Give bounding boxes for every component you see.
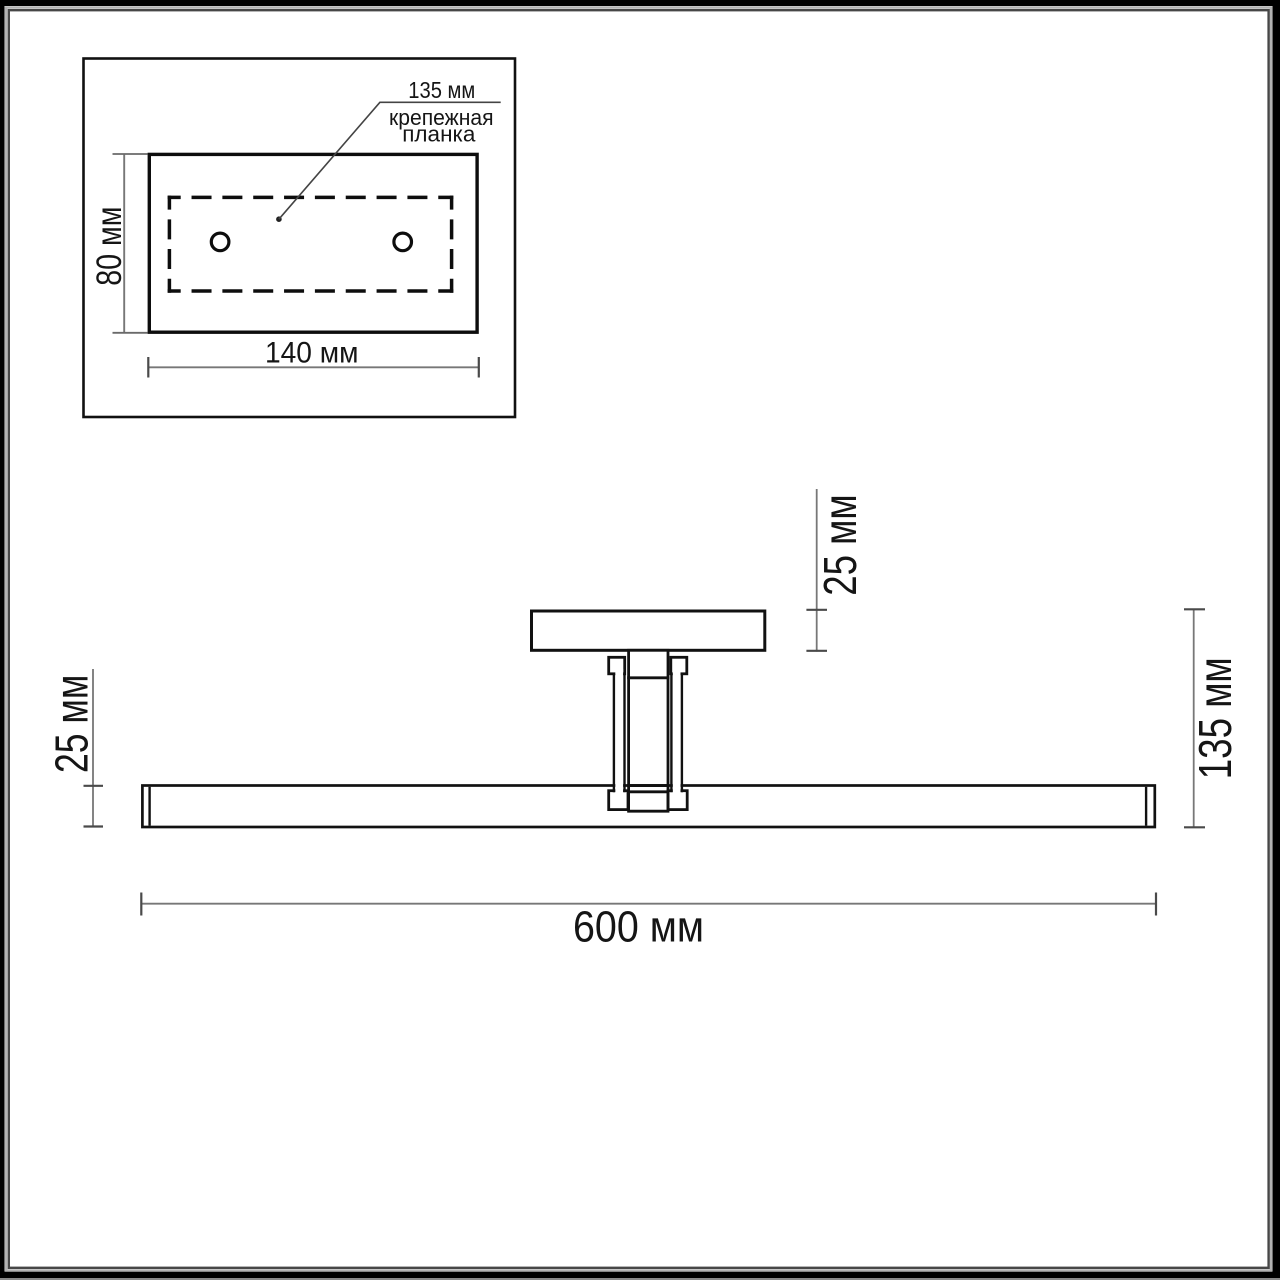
svg-text:планка: планка	[402, 122, 476, 147]
svg-text:600 мм: 600 мм	[573, 903, 704, 952]
svg-text:80 мм: 80 мм	[90, 207, 129, 286]
svg-text:135 мм: 135 мм	[408, 77, 475, 103]
svg-text:25 мм: 25 мм	[46, 675, 98, 773]
svg-text:25 мм: 25 мм	[814, 494, 866, 595]
svg-text:140 мм: 140 мм	[265, 337, 359, 370]
svg-text:135 мм: 135 мм	[1189, 657, 1241, 779]
